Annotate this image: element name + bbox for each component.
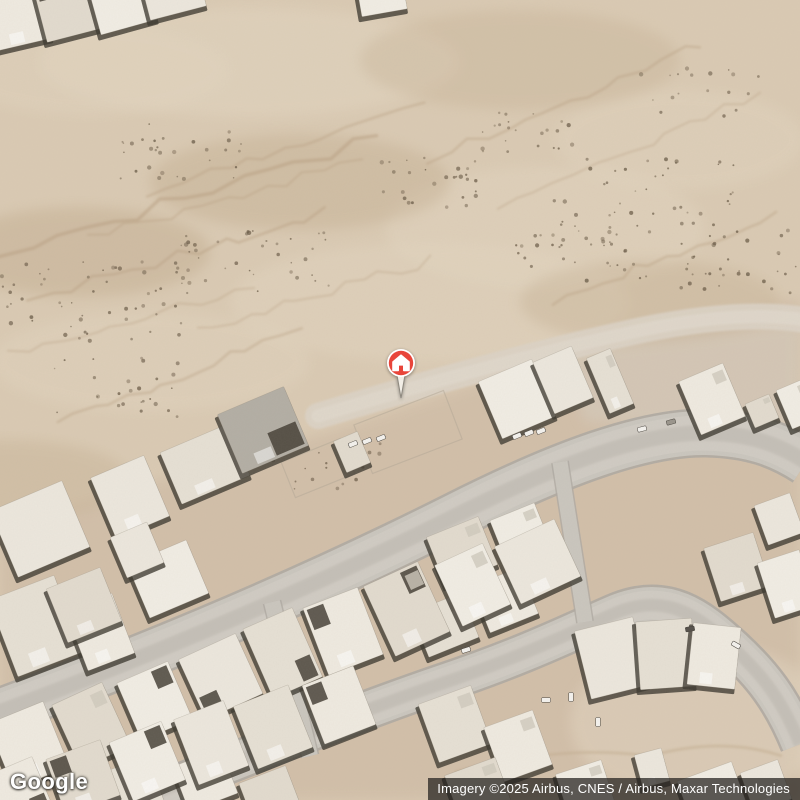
location-marker[interactable] <box>384 347 418 401</box>
google-logo[interactable]: Google <box>10 769 88 795</box>
map-canvas[interactable]: Google Imagery ©2025 Airbus, CNES / Airb… <box>0 0 800 800</box>
marker-tail <box>397 375 405 398</box>
map-attribution: Imagery ©2025 Airbus, CNES / Airbus, Max… <box>428 778 800 800</box>
